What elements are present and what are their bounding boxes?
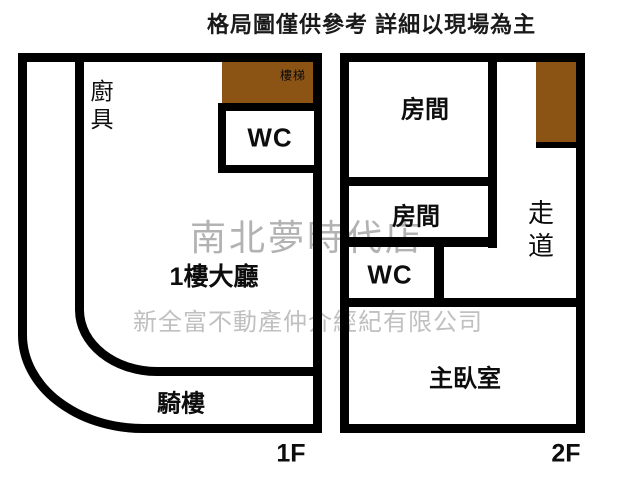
floor2-room-top-label: 房間 [401,90,449,125]
floor2-wc-label: WC [367,260,412,291]
floor1-arcade-label: 騎樓 [157,384,205,419]
disclaimer-title: 格局圖僅供參考 詳細以現場為主 [207,7,536,39]
floorplan-canvas: 南北夢時代店 新全富不動產仲介經紀有限公司 格局圖僅供參考 詳細以現場為主 廚具… [0,0,621,480]
floor1-hall-label: 1樓大廳 [170,257,259,293]
floor2-floor-number: 2F [551,440,580,469]
floor1-kitchen-label: 廚具 [83,79,117,135]
floor2-wc-right-wall [434,237,444,307]
floor1-wc-label: WC [247,123,292,154]
floor2-room1-bottom-wall [349,177,497,186]
floor2-corridor-label: 走道 [522,199,559,265]
floor2-room-middle-label: 房間 [392,197,440,232]
floor1-floor-number: 1F [276,440,305,469]
floor2-rooms-corridor-wall [488,62,497,248]
floor2-stairs-area [536,62,576,148]
floor2-master-bedroom-label: 主臥室 [429,359,501,394]
floor1-stairs-label: 樓梯 [280,67,306,84]
floor2-room2-bottom-wall [349,237,497,247]
floor2-master-bedroom-top-wall [349,298,576,307]
